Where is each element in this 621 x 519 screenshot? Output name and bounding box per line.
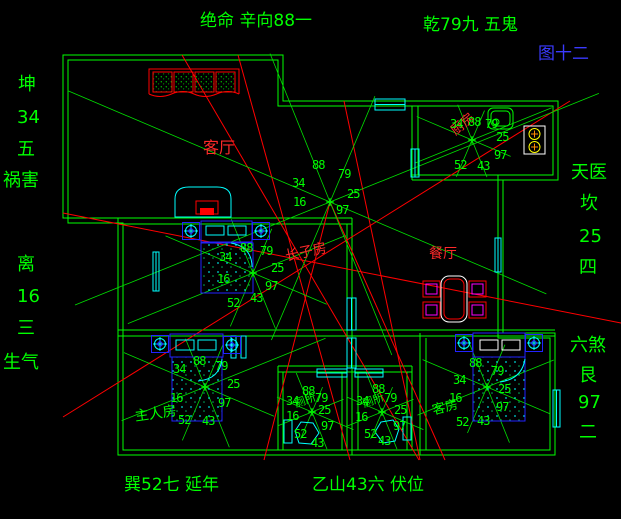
label-kun: 坤 [18, 76, 36, 94]
star-number: 97 [336, 204, 348, 216]
compass-ray [330, 202, 392, 355]
star-number: 43 [250, 292, 262, 304]
star-number: 43 [477, 160, 489, 172]
star-number: 97 [494, 149, 506, 161]
label-gen: 艮 [579, 367, 597, 385]
label-kan: 坎 [580, 195, 598, 213]
label-kan-stars: 25 [579, 228, 602, 246]
compass-symbol [253, 223, 270, 240]
star-number: 25 [347, 188, 359, 200]
star-number: 79 [260, 245, 272, 257]
label-liusha: 六煞 [570, 337, 606, 355]
label-yishan-bottom: 乙山43六 伏位 [312, 477, 424, 494]
room-label-living: 客厅 [203, 140, 235, 156]
star-number: 16 [449, 392, 461, 404]
room-center-marker [378, 408, 386, 416]
star-number: 52 [456, 416, 468, 428]
room-center-marker [326, 198, 334, 206]
star-number: 16 [170, 392, 182, 404]
star-number: 16 [355, 411, 367, 423]
star-number: 25 [318, 404, 330, 416]
star-number: 88 [469, 357, 481, 369]
room-label-dining: 餐厅 [429, 247, 457, 261]
star-number: 34 [356, 395, 368, 407]
compass-symbol [456, 335, 473, 352]
star-number: 52 [454, 159, 466, 171]
label-xun-bottom: 巽52七 延年 [124, 477, 219, 494]
wall-kitchen-bottom [412, 175, 553, 180]
compass-symbol [526, 335, 543, 352]
star-number: 34 [450, 118, 462, 130]
label-li-stars: 16 [17, 288, 40, 306]
window-bath-right-top [355, 369, 383, 377]
label-huohai: 祸害 [3, 172, 39, 190]
label-tianyi: 天医 [571, 164, 607, 182]
star-number: 43 [311, 437, 323, 449]
star-number: 25 [496, 131, 508, 143]
label-kun-stars: 34 [17, 109, 40, 127]
compass-ray [68, 91, 330, 202]
window-corridor-lower [347, 338, 356, 368]
star-number: 97 [321, 420, 333, 432]
star-number: 88 [193, 355, 205, 367]
compass-symbol [224, 337, 241, 354]
star-number: 16 [286, 410, 298, 422]
star-number: 88 [468, 116, 480, 128]
label-shengqi: 生气 [3, 354, 39, 372]
star-number: 79 [338, 168, 350, 180]
dining-chairs [423, 281, 486, 318]
star-number: 97 [218, 397, 230, 409]
label-li: 离 [17, 256, 35, 274]
window-guest-right [553, 390, 560, 427]
compass-symbol [152, 336, 169, 353]
star-number: 88 [372, 383, 384, 395]
label-li-rank: 三 [17, 320, 35, 338]
star-number: 88 [240, 242, 252, 254]
star-number: 79 [485, 118, 497, 130]
star-number: 43 [378, 435, 390, 447]
star-number: 88 [302, 385, 314, 397]
window-dining-right [495, 238, 501, 272]
star-number: 43 [202, 415, 214, 427]
star-number: 52 [178, 414, 190, 426]
room-center-marker [308, 408, 316, 416]
star-number: 34 [219, 251, 231, 263]
label-juedi-top: 绝命 辛向88一 [200, 13, 312, 30]
star-number: 34 [173, 363, 185, 375]
star-number: 34 [292, 177, 304, 189]
dining-table-set [423, 276, 486, 322]
star-number: 52 [364, 428, 376, 440]
star-number: 16 [217, 273, 229, 285]
star-number: 25 [227, 378, 239, 390]
star-number: 25 [394, 404, 406, 416]
star-number: 79 [491, 365, 503, 377]
star-number: 88 [312, 159, 324, 171]
window-corridor-upper [347, 298, 356, 330]
star-number: 97 [265, 280, 277, 292]
label-gen-rank: 二 [579, 424, 597, 442]
star-number: 25 [498, 383, 510, 395]
piano [175, 187, 231, 217]
label-gen-stars: 97 [578, 394, 601, 412]
label-kun-rank: 五 [17, 141, 35, 159]
wall-master-bath [278, 366, 283, 450]
star-number: 43 [477, 415, 489, 427]
star-number: 97 [393, 420, 405, 432]
bed-master [170, 334, 223, 421]
kitchen-stove [524, 126, 545, 154]
figure-number-label: 图十二 [538, 46, 589, 63]
fengshui-floorplan: 绝命 辛向88一 乾79九 五鬼 图十二 坤 34 五 祸害 离 16 三 生气… [0, 0, 621, 519]
star-number: 16 [293, 196, 305, 208]
star-number: 52 [227, 297, 239, 309]
star-number: 25 [271, 262, 283, 274]
star-number: 97 [496, 401, 508, 413]
star-number: 52 [294, 428, 306, 440]
sofa [149, 69, 239, 97]
star-number: 79 [215, 360, 227, 372]
star-number: 34 [453, 374, 465, 386]
wall-guest-left [420, 333, 426, 455]
room-center-marker [468, 136, 476, 144]
label-kan-rank: 四 [579, 259, 597, 277]
label-qian-top-right: 乾79九 五鬼 [423, 17, 518, 34]
compass-ray [330, 93, 599, 202]
star-number: 34 [286, 395, 298, 407]
